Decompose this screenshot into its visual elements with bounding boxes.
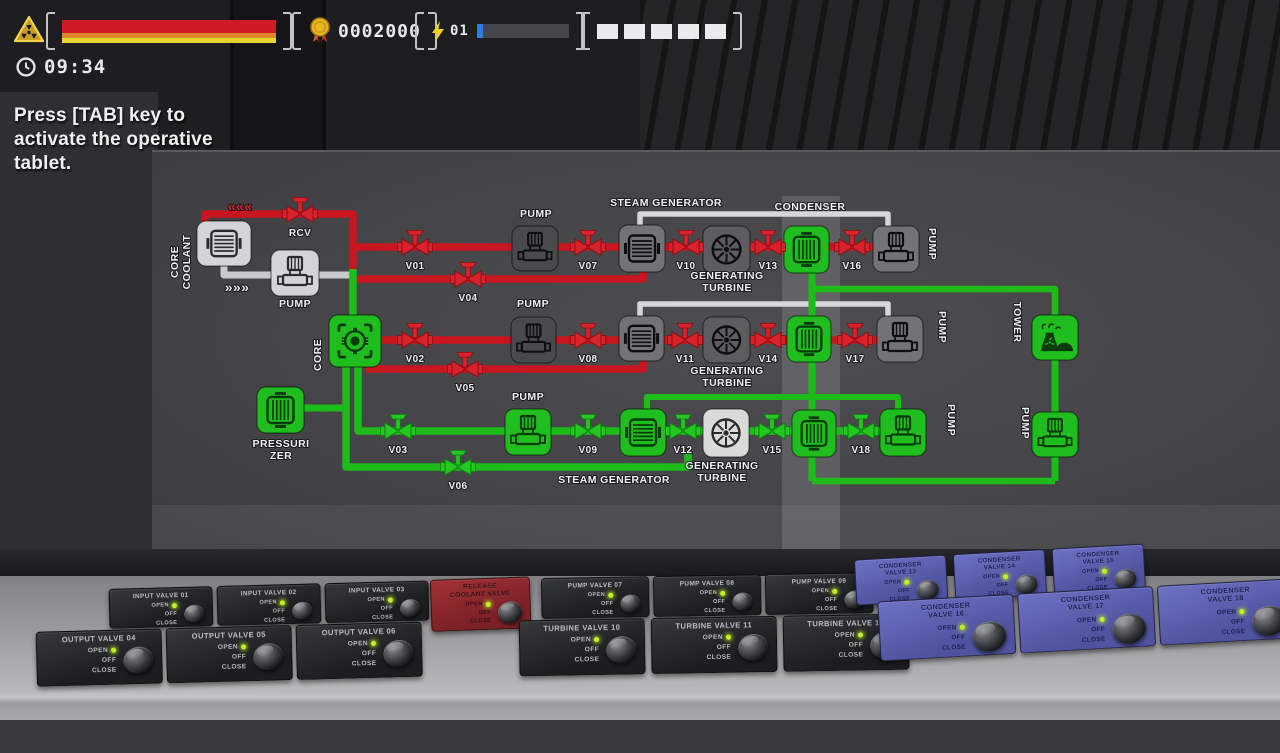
valve-knob[interactable] [1108,609,1149,648]
valve-knob[interactable] [1248,601,1280,640]
panel-condenser-valve-17: CONDENSER VALVE 17OPENOFFCLOSE [1017,586,1156,653]
open-led [1102,569,1107,574]
control-console: INPUT VALVE 01OPENOFFCLOSEINPUT VALVE 02… [0,0,1280,720]
open-led [904,580,909,585]
knob-position-labels: OPENOFFCLOSE [937,622,966,653]
open-led [960,625,965,630]
close-label: CLOSE [1078,634,1106,645]
panel-condenser-valve-18: CONDENSER VALVE 18OPENOFFCLOSE [1157,578,1280,645]
open-led [1003,574,1008,579]
close-label: CLOSE [1218,626,1246,637]
knob-position-labels: OPENOFFCLOSE [1077,614,1106,645]
valve-knob[interactable] [969,617,1010,656]
open-label: OPEN [1216,607,1236,618]
open-led [1239,609,1244,614]
open-label: OPEN [937,623,957,634]
panel-group-right: CONDENSER VALVE 13OPENOFFCLOSECONDENSER … [0,0,1280,753]
knob-position-labels: OPENOFFCLOSE [1216,607,1245,638]
open-led [1100,617,1105,622]
open-label: OPEN [1077,615,1097,626]
panel-condenser-valve-16: CONDENSER VALVE 16OPENOFFCLOSE [877,594,1016,661]
close-label: CLOSE [938,642,966,653]
